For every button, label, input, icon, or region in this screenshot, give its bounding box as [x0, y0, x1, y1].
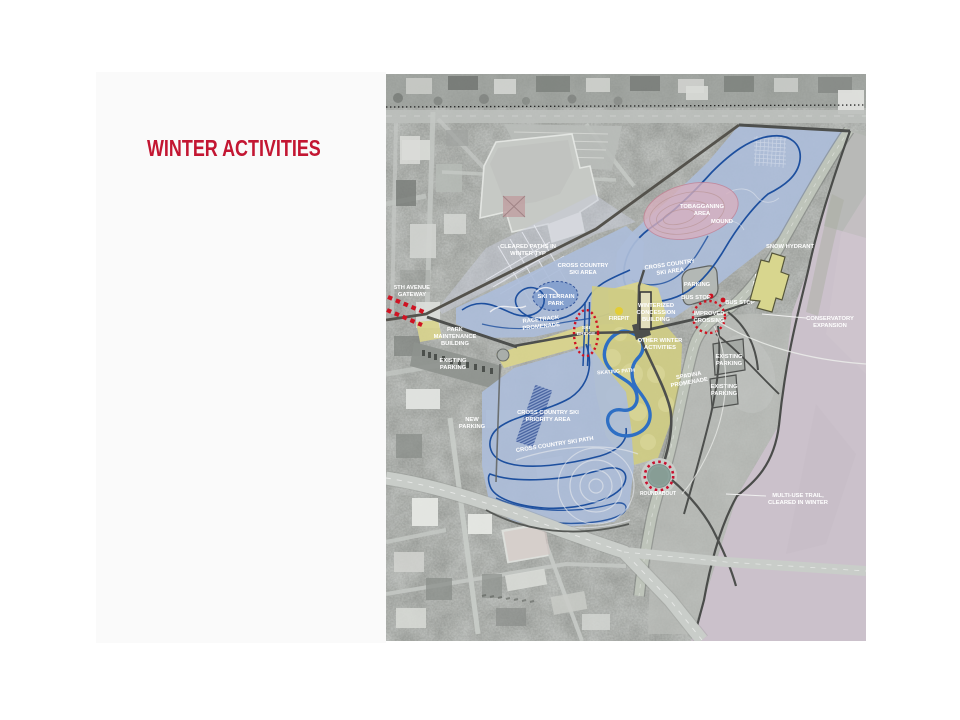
svg-text:NEW: NEW [465, 417, 479, 423]
svg-text:EXPANSION: EXPANSION [813, 323, 847, 329]
svg-text:SKI TERRAIN: SKI TERRAIN [537, 294, 574, 300]
svg-text:PARKING: PARKING [684, 282, 711, 288]
svg-text:CONCESSION: CONCESSION [637, 310, 676, 316]
svg-text:ACTIVITIES: ACTIVITIES [644, 345, 676, 351]
svg-text:GATEWAY: GATEWAY [398, 292, 426, 298]
svg-text:WINTERIZED: WINTERIZED [638, 303, 674, 309]
svg-text:BUILDING: BUILDING [441, 341, 470, 347]
svg-text:CROSS COUNTRY SKI: CROSS COUNTRY SKI [517, 410, 579, 416]
svg-text:5TH AVENUE: 5TH AVENUE [394, 285, 430, 291]
svg-text:CROSS COUNTRY: CROSS COUNTRY [558, 263, 609, 269]
svg-text:CONSERVATORY: CONSERVATORY [806, 316, 854, 322]
svg-text:CLEARED PATHS IN: CLEARED PATHS IN [500, 244, 556, 250]
svg-text:EXISTING: EXISTING [710, 384, 738, 390]
svg-text:PRIORITY AREA: PRIORITY AREA [525, 417, 571, 423]
svg-text:PARK: PARK [447, 327, 464, 333]
svg-text:BUS STOP: BUS STOP [725, 300, 755, 306]
svg-text:BUILDING: BUILDING [642, 317, 671, 323]
svg-text:WINTER TYP: WINTER TYP [510, 251, 546, 257]
svg-text:EXISTING: EXISTING [715, 354, 743, 360]
svg-text:SKI AREA: SKI AREA [569, 270, 597, 276]
svg-text:PARKING: PARKING [440, 365, 467, 371]
svg-text:PARKING: PARKING [716, 361, 743, 367]
svg-text:TOBAGGANING: TOBAGGANING [680, 204, 725, 210]
svg-text:MOUND: MOUND [711, 219, 733, 225]
svg-text:IMPROVED: IMPROVED [694, 311, 725, 317]
svg-text:CLEARED IN WINTER: CLEARED IN WINTER [768, 500, 829, 506]
svg-text:BUS STOP: BUS STOP [681, 295, 711, 301]
svg-text:SNOW HYDRANT: SNOW HYDRANT [766, 244, 814, 250]
svg-text:SKI: SKI [582, 325, 591, 331]
svg-text:MULTI-USE TRAIL,: MULTI-USE TRAIL, [772, 493, 824, 499]
svg-text:PARKING: PARKING [459, 424, 486, 430]
svg-text:EXISTING: EXISTING [439, 358, 467, 364]
svg-text:FIREPIT: FIREPIT [609, 316, 630, 322]
svg-text:AREA: AREA [694, 211, 711, 217]
svg-text:PARK: PARK [548, 301, 565, 307]
svg-text:ROUNDABOUT: ROUNDABOUT [640, 491, 676, 497]
svg-text:OTHER WINTER: OTHER WINTER [638, 338, 684, 344]
svg-text:BRIDGE: BRIDGE [577, 331, 596, 337]
svg-text:MAINTENANCE: MAINTENANCE [434, 334, 477, 340]
